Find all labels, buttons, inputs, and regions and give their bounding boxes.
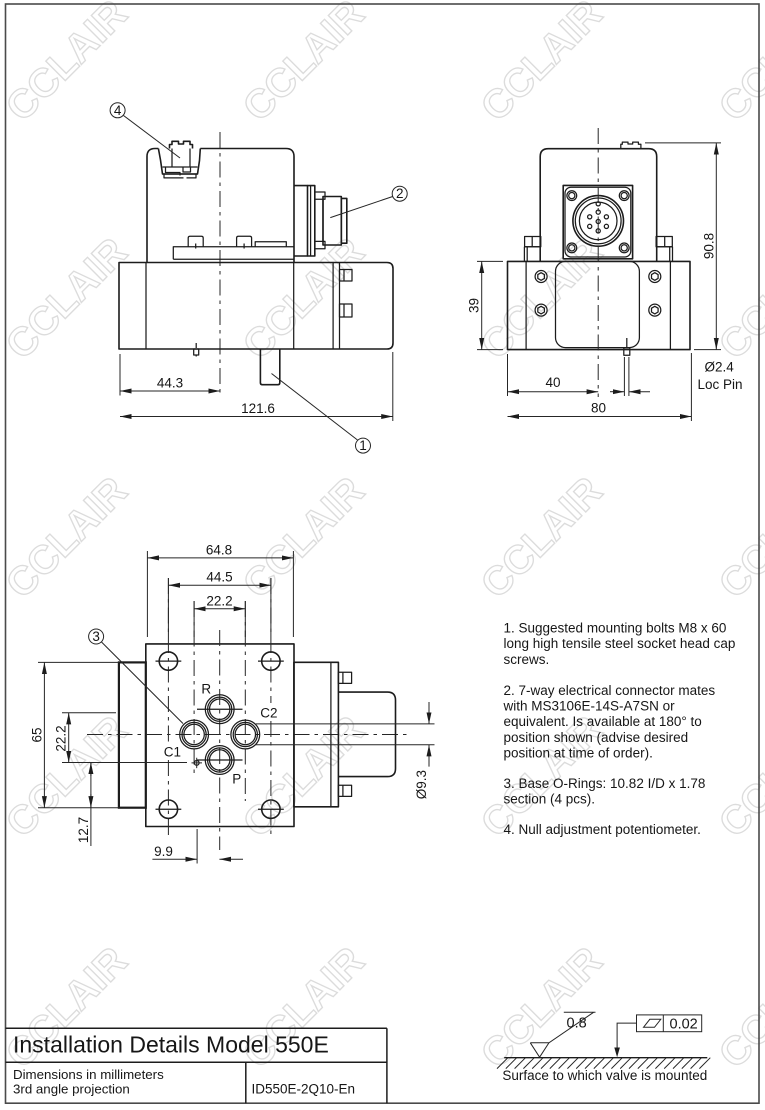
- svg-text:1. Suggested mounting bolts M8: 1. Suggested mounting bolts M8 x 60: [504, 621, 727, 636]
- svg-text:Surface to which valve is moun: Surface to which valve is mounted: [502, 1068, 707, 1083]
- svg-text:2: 2: [396, 186, 404, 201]
- svg-text:screws.: screws.: [504, 652, 550, 667]
- svg-text:3: 3: [92, 629, 100, 644]
- svg-text:with MS3106E-14S-A7SN or: with MS3106E-14S-A7SN or: [503, 699, 676, 714]
- svg-text:64.8: 64.8: [206, 542, 232, 557]
- svg-text:3. Base O-Rings: 10.82 I/D x 1: 3. Base O-Rings: 10.82 I/D x 1.78: [504, 776, 706, 791]
- svg-text:Ø9.3: Ø9.3: [414, 770, 429, 799]
- svg-text:4: 4: [114, 103, 122, 118]
- svg-text:position shown (advise desired: position shown (advise desired: [504, 730, 689, 745]
- svg-text:121.6: 121.6: [241, 401, 275, 416]
- svg-text:ID550E-2Q10-En: ID550E-2Q10-En: [252, 1082, 356, 1097]
- svg-text:long high tensile steel socket: long high tensile steel socket head cap: [504, 636, 736, 651]
- svg-text:section (4 pcs).: section (4 pcs).: [504, 792, 596, 807]
- svg-text:4. Null adjustment potentiomet: 4. Null adjustment potentiometer.: [504, 822, 701, 837]
- svg-text:P: P: [232, 772, 241, 787]
- svg-text:3rd angle projection: 3rd angle projection: [13, 1082, 130, 1097]
- svg-text:22.2: 22.2: [54, 725, 69, 751]
- svg-text:0.02: 0.02: [670, 1017, 698, 1033]
- svg-text:44.5: 44.5: [206, 570, 232, 585]
- svg-text:C1: C1: [164, 744, 181, 759]
- svg-text:Installation Details Model 550: Installation Details Model 550E: [13, 1032, 329, 1058]
- svg-text:0.8: 0.8: [567, 1016, 587, 1032]
- svg-text:Ø2.4: Ø2.4: [705, 360, 735, 375]
- svg-text:22.2: 22.2: [206, 593, 232, 608]
- svg-text:1: 1: [359, 438, 367, 453]
- svg-text:80: 80: [591, 401, 606, 416]
- svg-text:2. 7-way electrical connector: 2. 7-way electrical connector mates: [504, 683, 716, 698]
- svg-text:position at time of order).: position at time of order).: [504, 745, 653, 760]
- svg-text:65: 65: [29, 727, 44, 742]
- svg-text:40: 40: [545, 375, 560, 390]
- svg-text:44.3: 44.3: [157, 376, 183, 391]
- svg-text:Loc Pin: Loc Pin: [698, 377, 743, 392]
- svg-text:Dimensions in millimeters: Dimensions in millimeters: [13, 1067, 164, 1082]
- svg-text:39: 39: [467, 298, 482, 313]
- svg-text:equivalent. Is available at 18: equivalent. Is available at 180° to: [504, 714, 702, 729]
- svg-text:R: R: [201, 682, 211, 697]
- svg-text:9.9: 9.9: [154, 844, 173, 859]
- svg-text:C2: C2: [260, 706, 277, 721]
- svg-text:12.7: 12.7: [76, 817, 91, 843]
- svg-text:90.8: 90.8: [701, 233, 716, 259]
